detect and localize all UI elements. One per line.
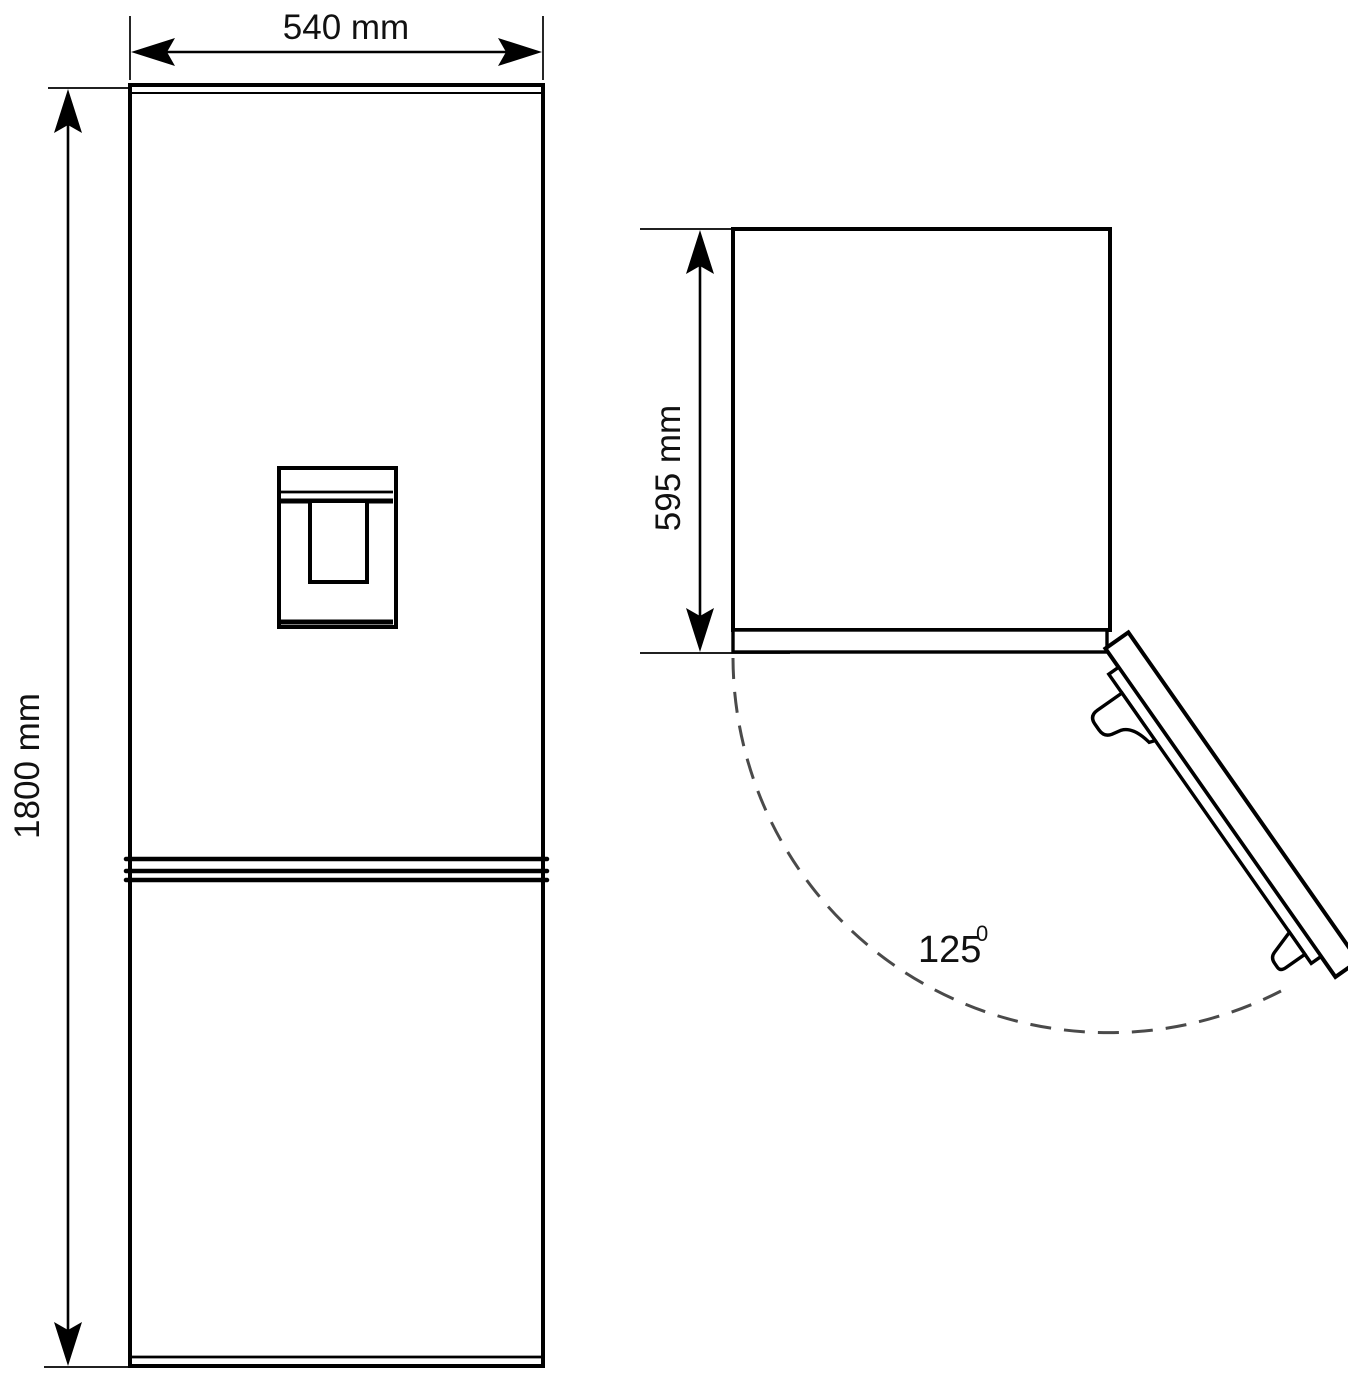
door-panel <box>1105 632 1348 977</box>
width-dimension: 540 mm <box>130 8 543 80</box>
cabinet-top-outline <box>733 229 1110 630</box>
door-angle-label: 125 0 <box>918 921 988 971</box>
front-view: 540 mm 1800 mm <box>8 8 547 1367</box>
depth-dimension-label: 595 mm <box>649 405 688 531</box>
fridge-body-outline <box>130 85 543 1366</box>
door-inner-liner <box>1109 667 1321 963</box>
height-dimension: 1800 mm <box>8 88 128 1367</box>
angle-superscript: 0 <box>976 921 988 946</box>
height-dimension-label: 1800 mm <box>8 693 47 839</box>
diagram-canvas: 540 mm 1800 mm 595 mm <box>0 0 1348 1382</box>
cabinet-front-frame <box>733 630 1107 652</box>
width-dimension-label: 540 mm <box>283 8 409 47</box>
refrigerator-dimension-diagram: 540 mm 1800 mm 595 mm <box>0 0 1348 1382</box>
top-view: 595 mm 125 0 <box>640 229 1348 1033</box>
angle-value: 125 <box>918 929 981 971</box>
door-swing-arc <box>733 658 1281 1033</box>
water-dispenser <box>279 468 396 627</box>
dispenser-recess <box>310 501 367 582</box>
open-door <box>1063 632 1348 1006</box>
